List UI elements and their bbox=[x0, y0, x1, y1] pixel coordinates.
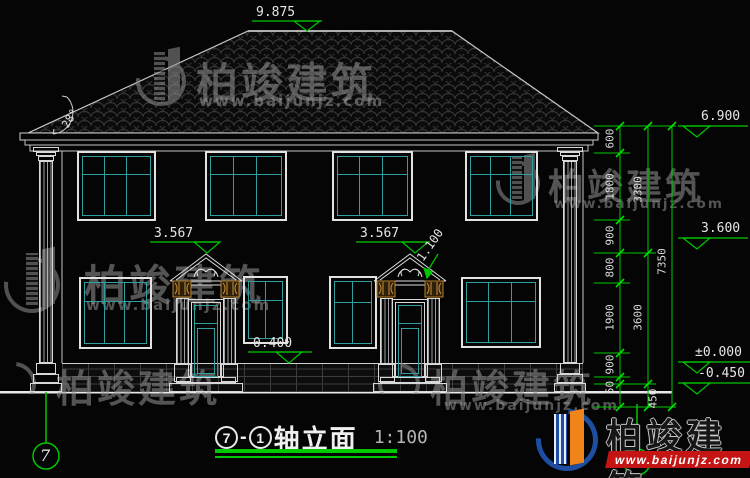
door-step bbox=[373, 383, 447, 392]
brand-url-banner: www.baijunjz.com bbox=[605, 451, 750, 468]
portico-column bbox=[427, 298, 440, 364]
elevation-drawing-canvas: 柏竣建筑 www.baijunjz.com 柏竣建筑 www.baijunjz.… bbox=[0, 0, 750, 478]
window bbox=[465, 151, 538, 221]
brand-building-icon bbox=[554, 414, 567, 464]
title-underline bbox=[215, 456, 397, 458]
elevation-second-floor: 3.600 bbox=[701, 221, 740, 236]
elevation-below-ground: -0.450 bbox=[698, 366, 745, 381]
elevation-pediment-right: 3.567 bbox=[360, 226, 399, 241]
dim-label: 600 bbox=[604, 117, 617, 161]
title-axis-end: 1 bbox=[249, 426, 272, 449]
window bbox=[243, 276, 288, 344]
dim-label-overall: 7350 bbox=[656, 240, 669, 284]
window bbox=[332, 151, 413, 221]
door-step bbox=[169, 383, 243, 392]
dim-label: 3600 bbox=[632, 296, 645, 340]
pilaster-base bbox=[554, 383, 586, 392]
dim-roof-angle: 28° bbox=[59, 107, 81, 131]
brand-url: www.baijunjz.com bbox=[614, 453, 745, 467]
grid-bubble-left: 7 bbox=[40, 446, 50, 465]
portico-column bbox=[223, 298, 236, 364]
brand-swoosh-icon bbox=[523, 396, 611, 478]
dim-label: 50 bbox=[604, 366, 617, 410]
dim-label: 3300 bbox=[632, 168, 645, 212]
door-panel bbox=[401, 328, 419, 374]
window bbox=[205, 151, 287, 221]
pilaster-base bbox=[36, 363, 56, 374]
dim-label: 800 bbox=[604, 246, 617, 290]
watermark-logo-icon bbox=[136, 48, 192, 112]
dim-label: 1800 bbox=[604, 165, 617, 209]
pediment-ornament bbox=[398, 269, 422, 277]
pilaster-base bbox=[30, 383, 62, 392]
elevation-zero: ±0.000 bbox=[695, 345, 742, 360]
window bbox=[79, 277, 152, 349]
title-axis-start: 7 bbox=[215, 426, 238, 449]
title-scale: 1:100 bbox=[374, 427, 428, 448]
brand-logo: 柏竣建筑 www.baijunjz.com bbox=[534, 404, 750, 476]
brand-building-icon bbox=[570, 409, 584, 466]
pilaster-base bbox=[557, 374, 583, 383]
pilaster-base bbox=[33, 374, 59, 383]
elevation-pediment-left: 3.567 bbox=[154, 226, 193, 241]
cornice bbox=[20, 133, 598, 140]
dim-pediment-height: 1.100 bbox=[414, 226, 446, 264]
dim-label: 1900 bbox=[604, 296, 617, 340]
elevation-window-sill: 0.400 bbox=[253, 336, 292, 351]
elevation-eave: 6.900 bbox=[701, 109, 740, 124]
window bbox=[461, 277, 541, 348]
pilaster-shaft bbox=[563, 161, 577, 363]
pilaster-base bbox=[560, 363, 580, 374]
pilaster-shaft bbox=[39, 161, 53, 363]
door-pediment bbox=[374, 254, 446, 285]
elevation-ridge: 9.875 bbox=[256, 5, 295, 20]
window bbox=[329, 276, 377, 349]
watermark-url: www.baijunjz.com bbox=[199, 92, 384, 110]
title-underline bbox=[215, 449, 397, 453]
title-dash: - bbox=[240, 426, 247, 449]
window bbox=[77, 151, 156, 221]
door-panel bbox=[197, 328, 215, 374]
